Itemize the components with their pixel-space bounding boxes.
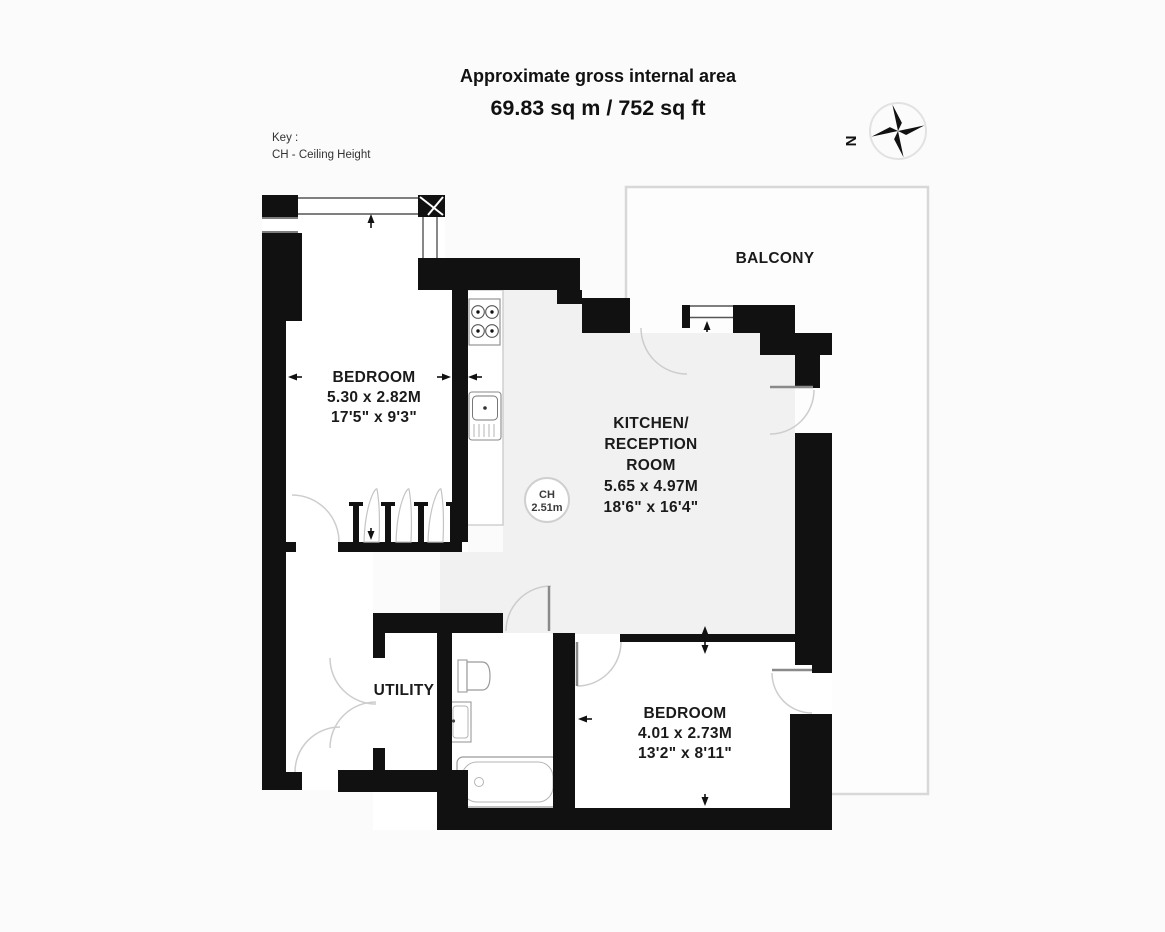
bedroom1-side-window — [262, 217, 298, 233]
kitchen-dim-metric: 5.65 x 4.97M — [604, 478, 698, 495]
kitchen-balcony-door-leaf — [682, 305, 690, 328]
kitchen-label-3: ROOM — [626, 457, 675, 474]
bedroom2-dim-imperial: 13'2" x 8'11" — [638, 745, 732, 762]
ceiling-height-abbr: CH — [539, 489, 555, 501]
floorplan-drawing: BALCONY — [0, 0, 1165, 932]
ceiling-height-value: 2.51m — [531, 502, 562, 514]
kitchen-dim-imperial: 18'6" x 16'4" — [604, 499, 699, 516]
compass-north-label: N — [843, 136, 860, 147]
bedroom1-window — [298, 197, 418, 215]
kitchen-label-1: KITCHEN/ — [613, 415, 689, 432]
compass: N — [843, 103, 926, 159]
header: Approximate gross internal area 69.83 sq… — [272, 66, 737, 161]
utility-label: UTILITY — [374, 682, 435, 699]
bedroom2-label-group: BEDROOM 4.01 x 2.73M 13'2" x 8'11" — [638, 705, 732, 762]
key-heading: Key : — [272, 132, 298, 144]
bedroom2-dim-metric: 4.01 x 2.73M — [638, 725, 732, 742]
bedroom1-dim-imperial: 17'5" x 9'3" — [331, 409, 417, 426]
hob — [469, 299, 500, 345]
floorplan-page: BALCONY — [0, 0, 1165, 932]
balcony-label: BALCONY — [736, 250, 815, 267]
ceiling-height-badge: CH 2.51m — [525, 478, 569, 522]
compass-star — [872, 105, 925, 158]
balcony-window — [687, 305, 733, 319]
bedroom1-label: BEDROOM — [332, 369, 415, 386]
hatched-column — [418, 195, 445, 217]
page-title: Approximate gross internal area — [460, 66, 737, 86]
bathtub — [457, 757, 558, 807]
bedroom2-label: BEDROOM — [643, 705, 726, 722]
page-subtitle: 69.83 sq m / 752 sq ft — [490, 96, 705, 120]
kitchen-sink — [469, 392, 501, 440]
kitchen-label-2: RECEPTION — [604, 436, 697, 453]
bedroom1-dim-metric: 5.30 x 2.82M — [327, 389, 421, 406]
kitchen-corner-window — [422, 217, 438, 258]
toilet — [458, 660, 490, 692]
kitchen-fixtures — [467, 290, 503, 525]
bathroom-sink — [450, 702, 471, 742]
key-ceiling-height: CH - Ceiling Height — [272, 149, 371, 161]
bedroom1-label-group: BEDROOM 5.30 x 2.82M 17'5" x 9'3" — [327, 369, 421, 426]
